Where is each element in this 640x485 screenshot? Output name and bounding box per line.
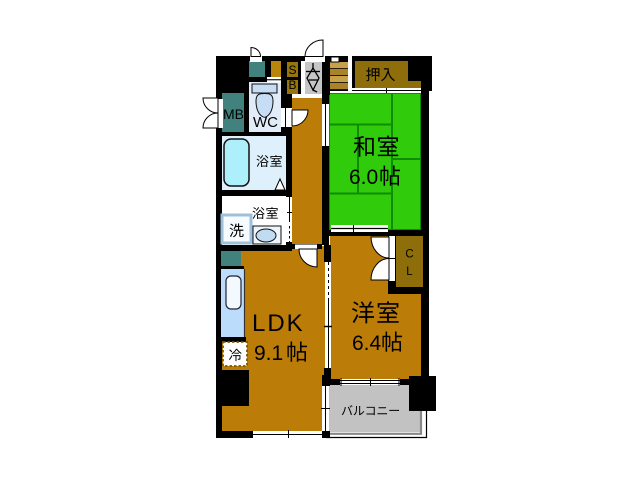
svg-text:LDK: LDK xyxy=(252,310,305,337)
svg-text:S: S xyxy=(288,63,296,77)
svg-text:6.4: 6.4 xyxy=(352,332,382,355)
svg-text:MB: MB xyxy=(223,106,244,122)
svg-text:L: L xyxy=(406,266,413,278)
svg-text:6.0: 6.0 xyxy=(349,166,378,189)
svg-text:C: C xyxy=(405,249,413,261)
svg-text:B: B xyxy=(288,78,296,92)
svg-text:WC: WC xyxy=(253,114,278,131)
svg-text:9.1: 9.1 xyxy=(254,342,283,365)
